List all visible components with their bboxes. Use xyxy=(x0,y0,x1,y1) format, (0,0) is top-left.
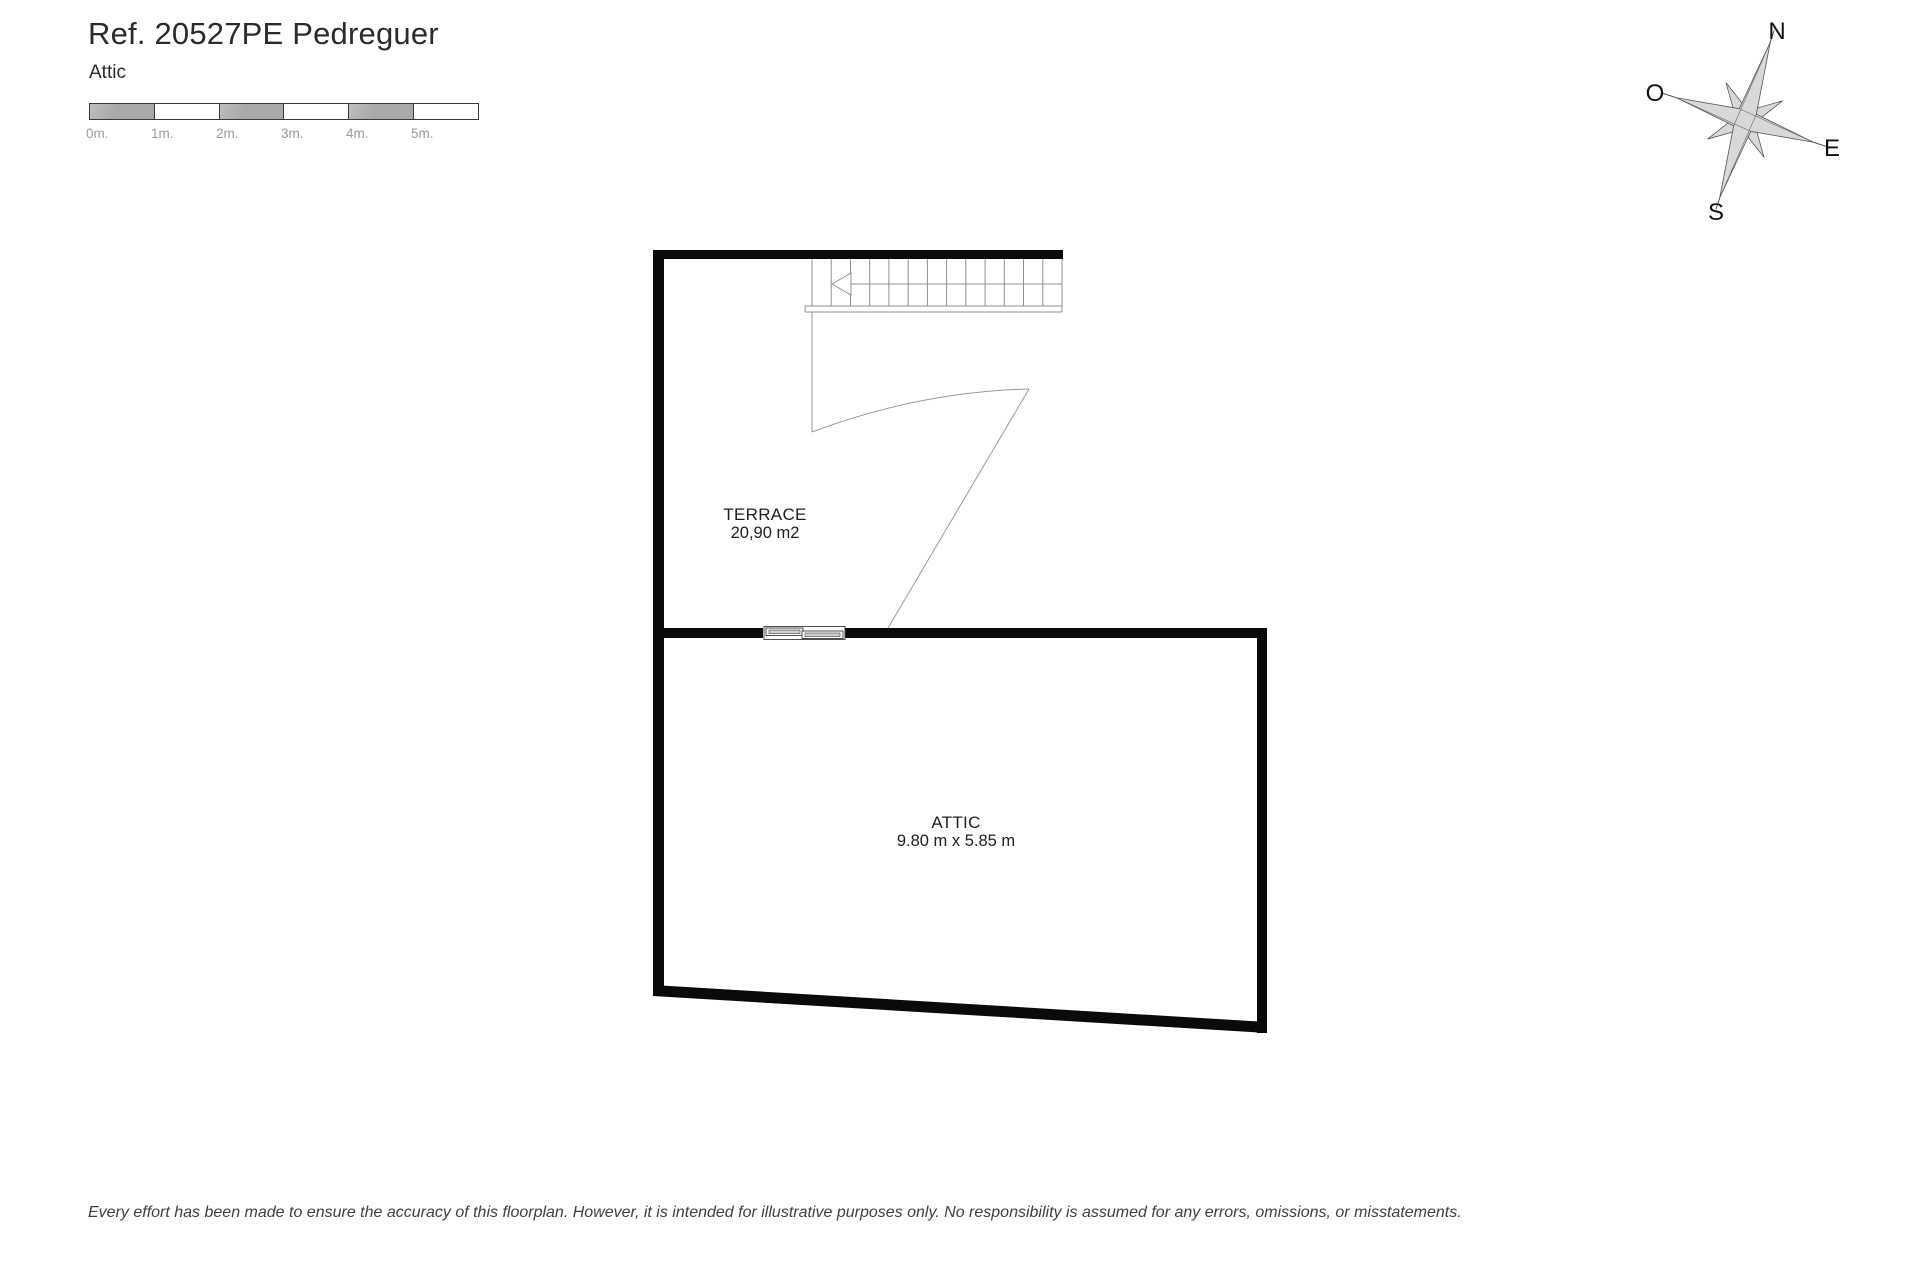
attic-right-wall xyxy=(1257,628,1267,1033)
attic-room-label: ATTIC 9.80 m x 5.85 m xyxy=(846,813,1066,850)
left-wall xyxy=(653,250,664,996)
room-name: ATTIC xyxy=(846,813,1066,832)
sliding-door-icon xyxy=(764,627,845,640)
room-area: 20,90 m2 xyxy=(655,524,875,542)
terrace-room-label: TERRACE 20,90 m2 xyxy=(655,505,875,542)
staircase-icon xyxy=(805,259,1062,312)
disclaimer-text: Every effort has been made to ensure the… xyxy=(88,1204,1462,1222)
terrace-top-wall xyxy=(653,250,1063,259)
terrace-void-edge xyxy=(812,312,1029,628)
floorplan-drawing xyxy=(0,0,1920,1280)
attic-bottom-wall xyxy=(653,985,1267,1033)
room-name: TERRACE xyxy=(655,505,875,524)
attic-top-wall-left xyxy=(653,628,763,638)
floorplan-page: Ref. 20527PE Pedreguer Attic 0m. 1m. 2m.… xyxy=(0,0,1920,1280)
walls xyxy=(653,250,1267,1033)
room-dimensions: 9.80 m x 5.85 m xyxy=(846,832,1066,850)
stair-arrow-icon xyxy=(832,273,851,295)
attic-top-wall-right xyxy=(845,628,1267,638)
